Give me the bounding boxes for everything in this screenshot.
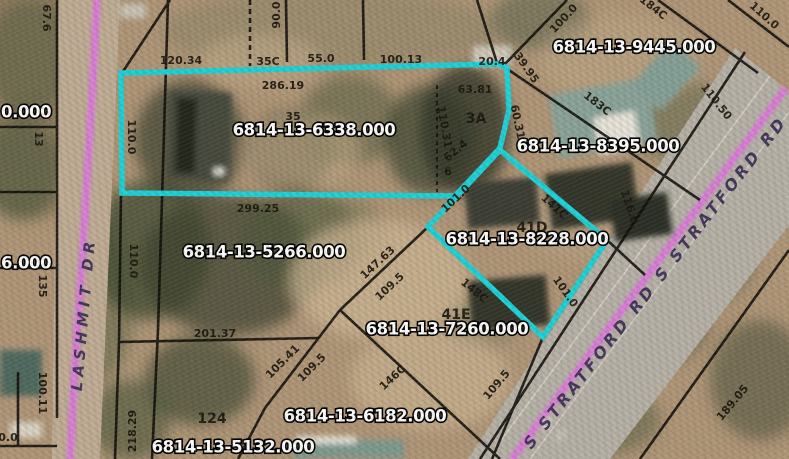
dimension-label: 35C — [256, 55, 279, 68]
dimension-label: 55.0 — [307, 52, 334, 65]
parcel-id-label: 6814-13-8395.000 — [517, 137, 680, 156]
dimension-label: 3A — [466, 111, 487, 127]
boundary-line — [363, 0, 364, 60]
building — [175, 98, 198, 174]
parcel-id-label: 6814-13-6182.000 — [284, 407, 447, 426]
parcel-id-label: 6.000 — [1, 254, 51, 273]
dimension-label: 110.0 — [127, 244, 140, 279]
parcel-id-label: 6814-13-5266.000 — [183, 243, 346, 262]
parcel-id-label: 6814-13-9445.000 — [553, 38, 716, 57]
dimension-label: 120.34 — [160, 54, 203, 67]
parcel-id-label: 0.000 — [1, 103, 51, 122]
parcel-id-label: 6814-13-5132.000 — [152, 438, 315, 457]
dimension-label: 100.13 — [380, 53, 422, 66]
dimension-label: 124 — [197, 411, 226, 427]
dimension-label: 20.4 — [478, 55, 505, 68]
dimension-label: 201.37 — [194, 327, 236, 340]
dimension-label: 0.0 — [0, 431, 18, 444]
dimension-label: 13 — [32, 131, 45, 146]
parcel-id-label: 6814-13-7260.000 — [366, 320, 529, 339]
dimension-label: 135 — [36, 275, 49, 298]
dimension-label: 67.6 — [40, 4, 53, 31]
dimension-label: 110.0 — [125, 120, 138, 155]
dimension-label: 218.29 — [126, 410, 139, 452]
dimension-label: 6 — [444, 165, 452, 178]
building — [214, 168, 224, 175]
dimension-label: 90.0 — [270, 1, 283, 28]
map-canvas: 67.6120.3435C55.0100.1320.490.0286.19110… — [0, 0, 789, 459]
dimension-label: 63.81 — [458, 83, 493, 96]
parcel-id-label: 6814-13-6338.000 — [233, 121, 396, 140]
building — [120, 4, 146, 18]
dimension-label: 100.11 — [36, 372, 49, 414]
dimension-label: 299.25 — [237, 202, 279, 215]
boundary-line — [286, 0, 287, 62]
dimension-label: 286.19 — [262, 79, 304, 92]
parcel-map: 67.6120.3435C55.0100.1320.490.0286.19110… — [0, 0, 789, 459]
parcel-id-label: 6814-13-8228.000 — [446, 230, 609, 249]
building — [0, 350, 42, 396]
building — [609, 192, 672, 242]
